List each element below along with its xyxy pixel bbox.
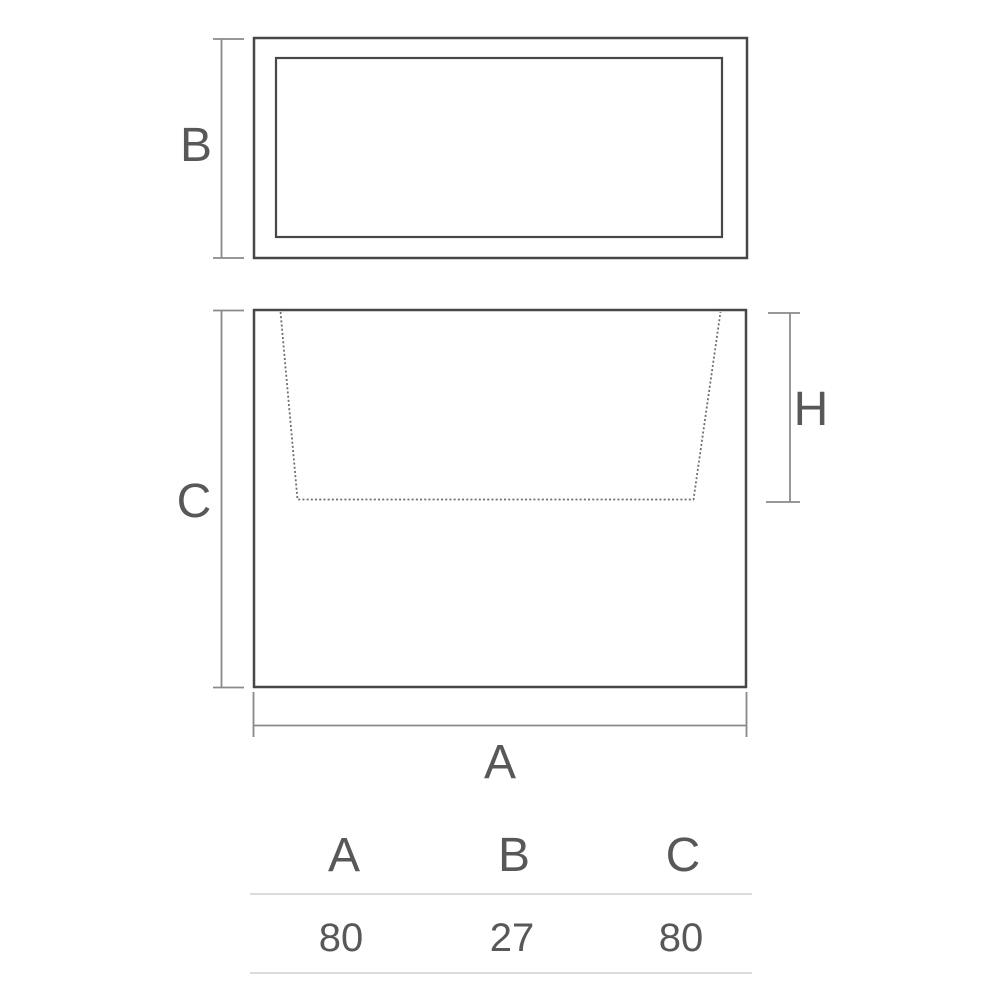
dimension-h: H (766, 313, 828, 502)
spec-table-value-b: 27 (490, 916, 535, 960)
dimension-b-label: B (180, 119, 212, 172)
spec-table-value-a: 80 (319, 916, 364, 960)
spec-table: A B C 80 27 80 (250, 829, 752, 973)
top-view-inner-rim-rect (276, 58, 722, 237)
dimension-diagram-page: B C H A A B (0, 0, 1000, 1000)
dimension-diagram: B C H A A B (0, 0, 1000, 1000)
dimension-a-label: A (484, 736, 516, 789)
spec-table-value-c: 80 (659, 916, 704, 960)
dimension-c-label: C (177, 475, 212, 528)
front-view-outer-rect (254, 310, 746, 687)
spec-table-header-c: C (666, 829, 701, 882)
dimension-c: C (177, 311, 244, 688)
top-view-outer-rect (254, 38, 747, 258)
dimension-a: A (254, 692, 748, 789)
spec-table-header-b: B (498, 829, 530, 882)
dimension-h-label: H (794, 383, 829, 436)
inner-cavity-dashed-outline (281, 312, 721, 500)
top-view (254, 38, 747, 258)
spec-table-header-a: A (328, 829, 360, 882)
dimension-b: B (180, 39, 244, 258)
front-view (254, 310, 746, 687)
